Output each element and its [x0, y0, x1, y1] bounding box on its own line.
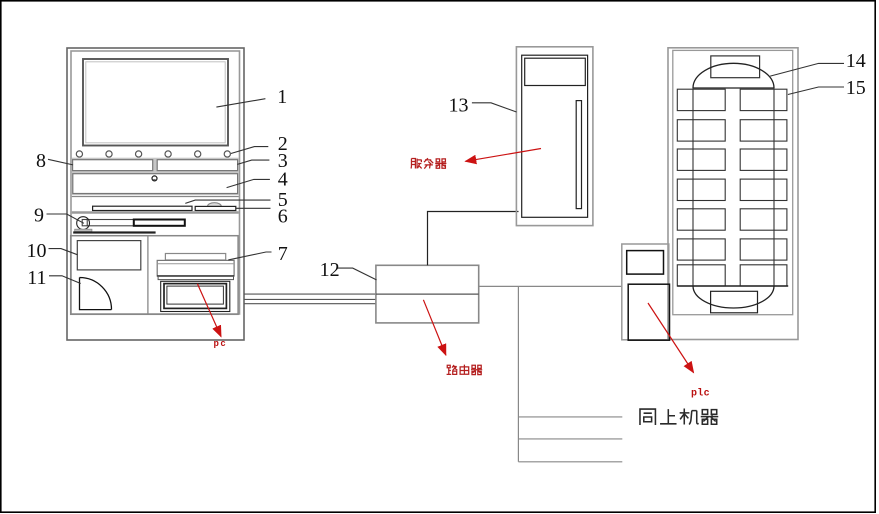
svg-text:4: 4	[278, 169, 288, 191]
svg-text:7: 7	[278, 243, 288, 265]
svg-text:8: 8	[36, 150, 46, 172]
svg-text:13: 13	[449, 94, 469, 116]
svg-text:6: 6	[278, 206, 288, 228]
svg-text:14: 14	[846, 50, 866, 72]
svg-text:9: 9	[34, 204, 44, 226]
svg-text:pc: pc	[214, 339, 228, 349]
svg-text:1: 1	[277, 86, 287, 108]
svg-text:11: 11	[27, 267, 46, 289]
svg-text:15: 15	[846, 77, 866, 99]
svg-text:plc: plc	[691, 388, 710, 400]
svg-text:10: 10	[27, 240, 47, 262]
svg-text:12: 12	[320, 259, 340, 281]
